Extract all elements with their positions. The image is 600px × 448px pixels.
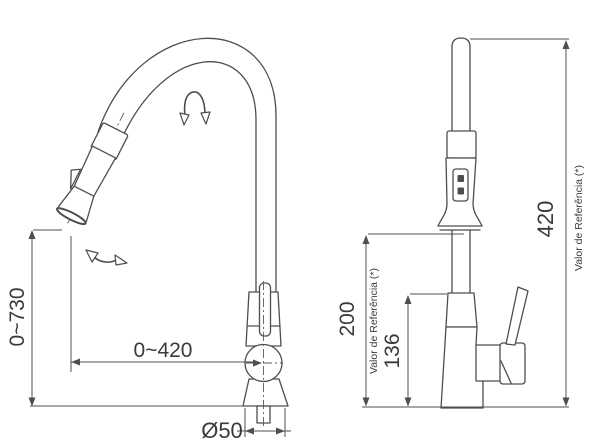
- spray-swivel-arrow-icon: [86, 250, 127, 265]
- dim-body-height-136: 136: [381, 294, 447, 407]
- handle-housing: [500, 343, 525, 384]
- spout-tube-side: [452, 38, 470, 131]
- front-view: 0~730 0~420 Ø50: [6, 38, 291, 443]
- dim-height-0-730: 0~730: [6, 230, 243, 407]
- spout-rotation-arrow-icon: [180, 92, 210, 125]
- lower-body-side: [441, 327, 483, 408]
- gooseneck-outer-curve: [98, 38, 276, 293]
- spray-mode-button-top: [458, 175, 465, 182]
- dim-label-body-height: 136: [381, 333, 404, 368]
- spray-collar-side: [447, 131, 476, 158]
- dim-base-diameter: Ø50: [201, 408, 291, 443]
- base-flare-front: [243, 379, 288, 406]
- spray-mode-button-bottom: [458, 188, 465, 195]
- dim-label-reach: 0~420: [134, 339, 193, 362]
- lever-handle-side: [506, 287, 528, 345]
- dim-overall-height-420: 420 Valor de Referência (*): [470, 39, 585, 407]
- dim-label-height: 0~730: [6, 288, 29, 347]
- dim-label-spray-clearance: 200: [336, 301, 359, 336]
- reference-note-left: Valor de Referência (*): [368, 268, 380, 374]
- side-view: 420 Valor de Referência (*) 200 Valor de…: [336, 38, 585, 408]
- faucet-technical-drawing: 0~730 0~420 Ø50: [0, 0, 600, 448]
- lever-handle-front: [260, 283, 271, 336]
- dim-reach-0-420: 0~420: [71, 236, 262, 372]
- reference-note-right: Valor de Referência (*): [573, 165, 585, 271]
- technical-drawing-svg: 0~730 0~420 Ø50: [0, 0, 600, 448]
- dim-label-base-diameter: Ø50: [201, 418, 243, 443]
- dim-label-overall-height: 420: [533, 201, 558, 238]
- spray-head-front: [49, 103, 138, 230]
- upper-body-side: [446, 293, 477, 327]
